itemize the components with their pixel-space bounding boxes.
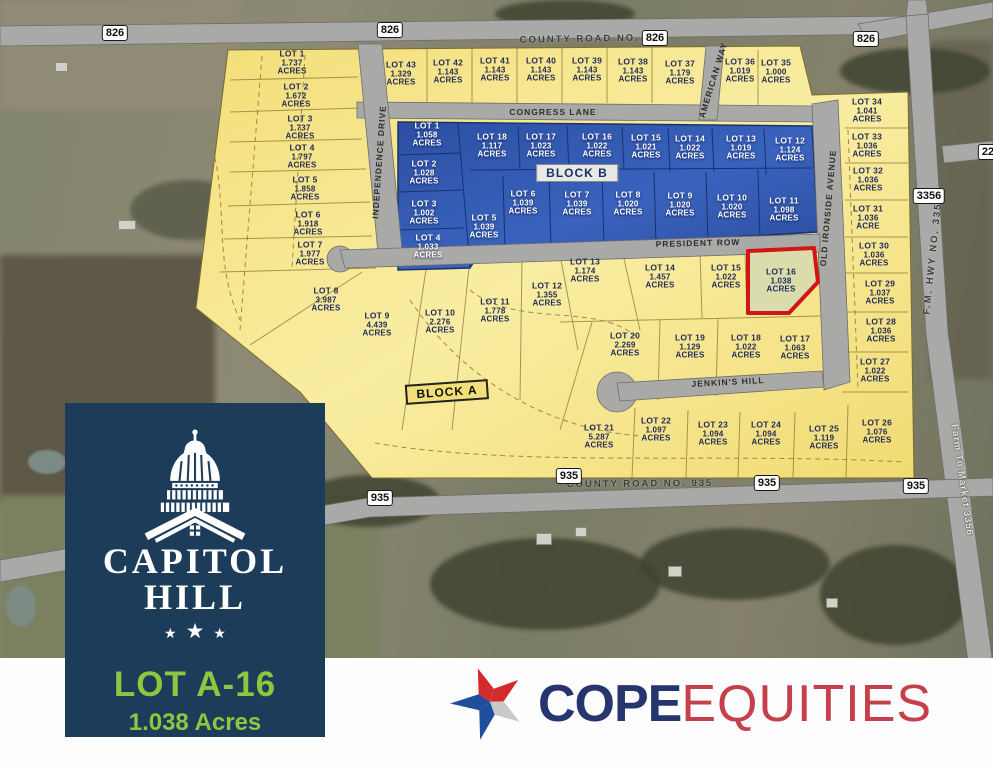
lot-label-b-lot-13: LOT 131.019ACRES	[726, 134, 756, 161]
lot-label-y-lot-27: LOT 271.022ACRES	[860, 357, 890, 384]
star-icon: ★	[164, 625, 177, 642]
lot-label-b-lot-2: LOT 21.028ACRES	[409, 159, 438, 186]
lot-label-y-lot-14: LOT 141.457ACRES	[645, 263, 675, 290]
lot-label-y-lot-37: LOT 371.179ACRES	[665, 59, 695, 86]
road-badge-935: 935	[903, 478, 929, 494]
block-label: BLOCK B	[536, 164, 618, 182]
lot-label-b-lot-5: LOT 51.039ACRES	[469, 213, 498, 240]
lot-label-y-lot-33: LOT 331.036ACRES	[852, 132, 882, 159]
lot-label-y-lot-24: LOT 241.094ACRES	[751, 420, 781, 447]
cope-wordmark: COPE	[538, 674, 681, 734]
lot-label-b-lot-16: LOT 161.022ACRES	[582, 132, 612, 159]
lot-label-y-lot-28: LOT 281.036ACRES	[866, 317, 896, 344]
lot-label-y-lot-6: LOT 61.918ACRES	[293, 210, 322, 237]
panel-lot-acres: 1.038 Acres	[129, 709, 262, 737]
lot-label-y-lot-29: LOT 291.037ACRES	[865, 279, 895, 306]
lot-label-y-lot-40: LOT 401.143ACRES	[526, 56, 556, 83]
street-label: COUNTY ROAD NO. 935	[567, 478, 714, 490]
lot-label-y-lot-11: LOT 111.778ACRES	[480, 297, 510, 324]
road-badge-22: 22	[978, 144, 993, 160]
lot-label-b-lot-14: LOT 141.022ACRES	[675, 134, 705, 161]
lot-label-b-lot-1: LOT 11.058ACRES	[412, 121, 441, 148]
capitol-hill-panel: CAPITOL HILL ★ ★ ★ LOT A-16 1.038 Acres	[65, 403, 325, 737]
lot-label-y-lot-18: LOT 181.022ACRES	[731, 333, 761, 360]
lot-label-y-lot-7: LOT 71.977ACRES	[295, 240, 324, 267]
lot-label-y-lot-42: LOT 421.143ACRES	[433, 58, 463, 85]
lot-label-y-lot-35: LOT 351.000ACRES	[761, 58, 791, 85]
road-badge-935: 935	[754, 475, 780, 491]
lot-label-y-lot-3: LOT 31.737ACRES	[285, 114, 314, 141]
road-badge-826: 826	[642, 30, 668, 46]
street-label: CONGRESS LANE	[509, 107, 596, 117]
panel-title-line2: HILL	[144, 579, 246, 615]
lot-label-b-lot-12: LOT 121.124ACRES	[775, 136, 805, 163]
lot-label-y-lot-12: LOT 121.355ACRES	[532, 281, 562, 308]
lot-label-y-lot-9: LOT 94.439ACRES	[362, 311, 391, 338]
road-badge-935: 935	[556, 468, 582, 484]
lot-label-y-lot-17: LOT 171.063ACRES	[780, 334, 810, 361]
lot-label-y-lot-8: LOT 83.987ACRES	[311, 286, 340, 313]
lot-label-y-lot-32: LOT 321.036ACRES	[853, 166, 883, 193]
lot-label-y-lot-23: LOT 231.094ACRES	[698, 420, 728, 447]
lot-label-y-lot-21: LOT 215.287ACRES	[584, 423, 614, 450]
capitol-dome-icon	[129, 427, 261, 543]
panel-lot-id: LOT A-16	[114, 665, 276, 705]
lot-label-y-lot-22: LOT 221.097ACRES	[641, 416, 671, 443]
equities-wordmark: EQUITIES	[681, 674, 932, 734]
lot-label-b-lot-3: LOT 31.002ACRES	[409, 199, 438, 226]
lot-label-b-lot-10: LOT 101.020ACRES	[717, 193, 747, 220]
lot-label-b-lot-15: LOT 151.021ACRES	[631, 133, 661, 160]
lot-label-b-lot-4: LOT 41.033ACRES	[413, 233, 442, 260]
lot-label-y-lot-25: LOT 251.119ACRES	[809, 424, 839, 451]
lot-label-y-lot-43: LOT 431.329ACRES	[386, 60, 416, 87]
lot-label-y-lot-39: LOT 391.143ACRES	[572, 56, 602, 83]
lot-label-b-lot-17: LOT 171.023ACRES	[526, 132, 556, 159]
lot-label-y-lot-26: LOT 261.076ACRES	[862, 418, 892, 445]
lot-label-y-lot-20: LOT 202.269ACRES	[610, 331, 640, 358]
lot-label-y-lot-34: LOT 341.041ACRES	[852, 97, 882, 124]
lot-label-y-lot-31: LOT 311.036ACRE	[853, 204, 883, 231]
lot-label-y-lot-4: LOT 41.797ACRES	[287, 143, 316, 170]
lot-label-y-lot-2: LOT 21.672ACRES	[281, 82, 310, 109]
road-badge-826: 826	[377, 22, 403, 38]
lot-label-b-lot-9: LOT 91.020ACRES	[665, 191, 694, 218]
road-badge-935: 935	[367, 490, 393, 506]
road-badge-826: 826	[102, 25, 128, 41]
star-icon: ★	[186, 619, 205, 644]
lot-label-y-lot-1: LOT 11.737ACRES	[277, 49, 306, 76]
lot-label-b-lot-6: LOT 61.039ACRES	[508, 189, 537, 216]
lot-label-y-lot-16: LOT 161.038ACRES	[766, 267, 796, 294]
lot-label-y-lot-19: LOT 191.129ACRES	[675, 333, 705, 360]
cope-star-icon	[448, 664, 532, 744]
lot-label-b-lot-8: LOT 81.020ACRES	[613, 190, 642, 217]
lot-label-b-lot-18: LOT 181.117ACRES	[477, 132, 507, 159]
lot-label-b-lot-7: LOT 71.039ACRES	[562, 190, 591, 217]
lot-label-y-lot-15: LOT 151.022ACRES	[711, 263, 741, 290]
star-icon: ★	[213, 625, 226, 642]
lot-label-y-lot-36: LOT 361.019ACRES	[725, 57, 755, 84]
panel-title-line1: CAPITOL	[103, 543, 287, 579]
lot-label-y-lot-38: LOT 381.143ACRES	[618, 57, 648, 84]
plat-map-canvas: LOT 11.737ACRESLOT 21.672ACRESLOT 31.737…	[0, 0, 993, 768]
lot-label-y-lot-41: LOT 411.143ACRES	[480, 56, 510, 83]
lot-label-b-lot-11: LOT 111.098ACRES	[769, 196, 799, 223]
lot-label-y-lot-5: LOT 51.858ACRES	[290, 175, 319, 202]
cope-equities-logo: COPE EQUITIES	[448, 664, 932, 744]
road-badge-3356: 3356	[913, 188, 945, 204]
lot-label-y-lot-13: LOT 131.174ACRES	[570, 257, 600, 284]
road-badge-826: 826	[853, 31, 879, 47]
lot-label-y-lot-10: LOT 102.276ACRES	[425, 308, 455, 335]
lot-label-y-lot-30: LOT 301.036ACRES	[859, 241, 889, 268]
panel-stars: ★ ★ ★	[164, 622, 226, 644]
